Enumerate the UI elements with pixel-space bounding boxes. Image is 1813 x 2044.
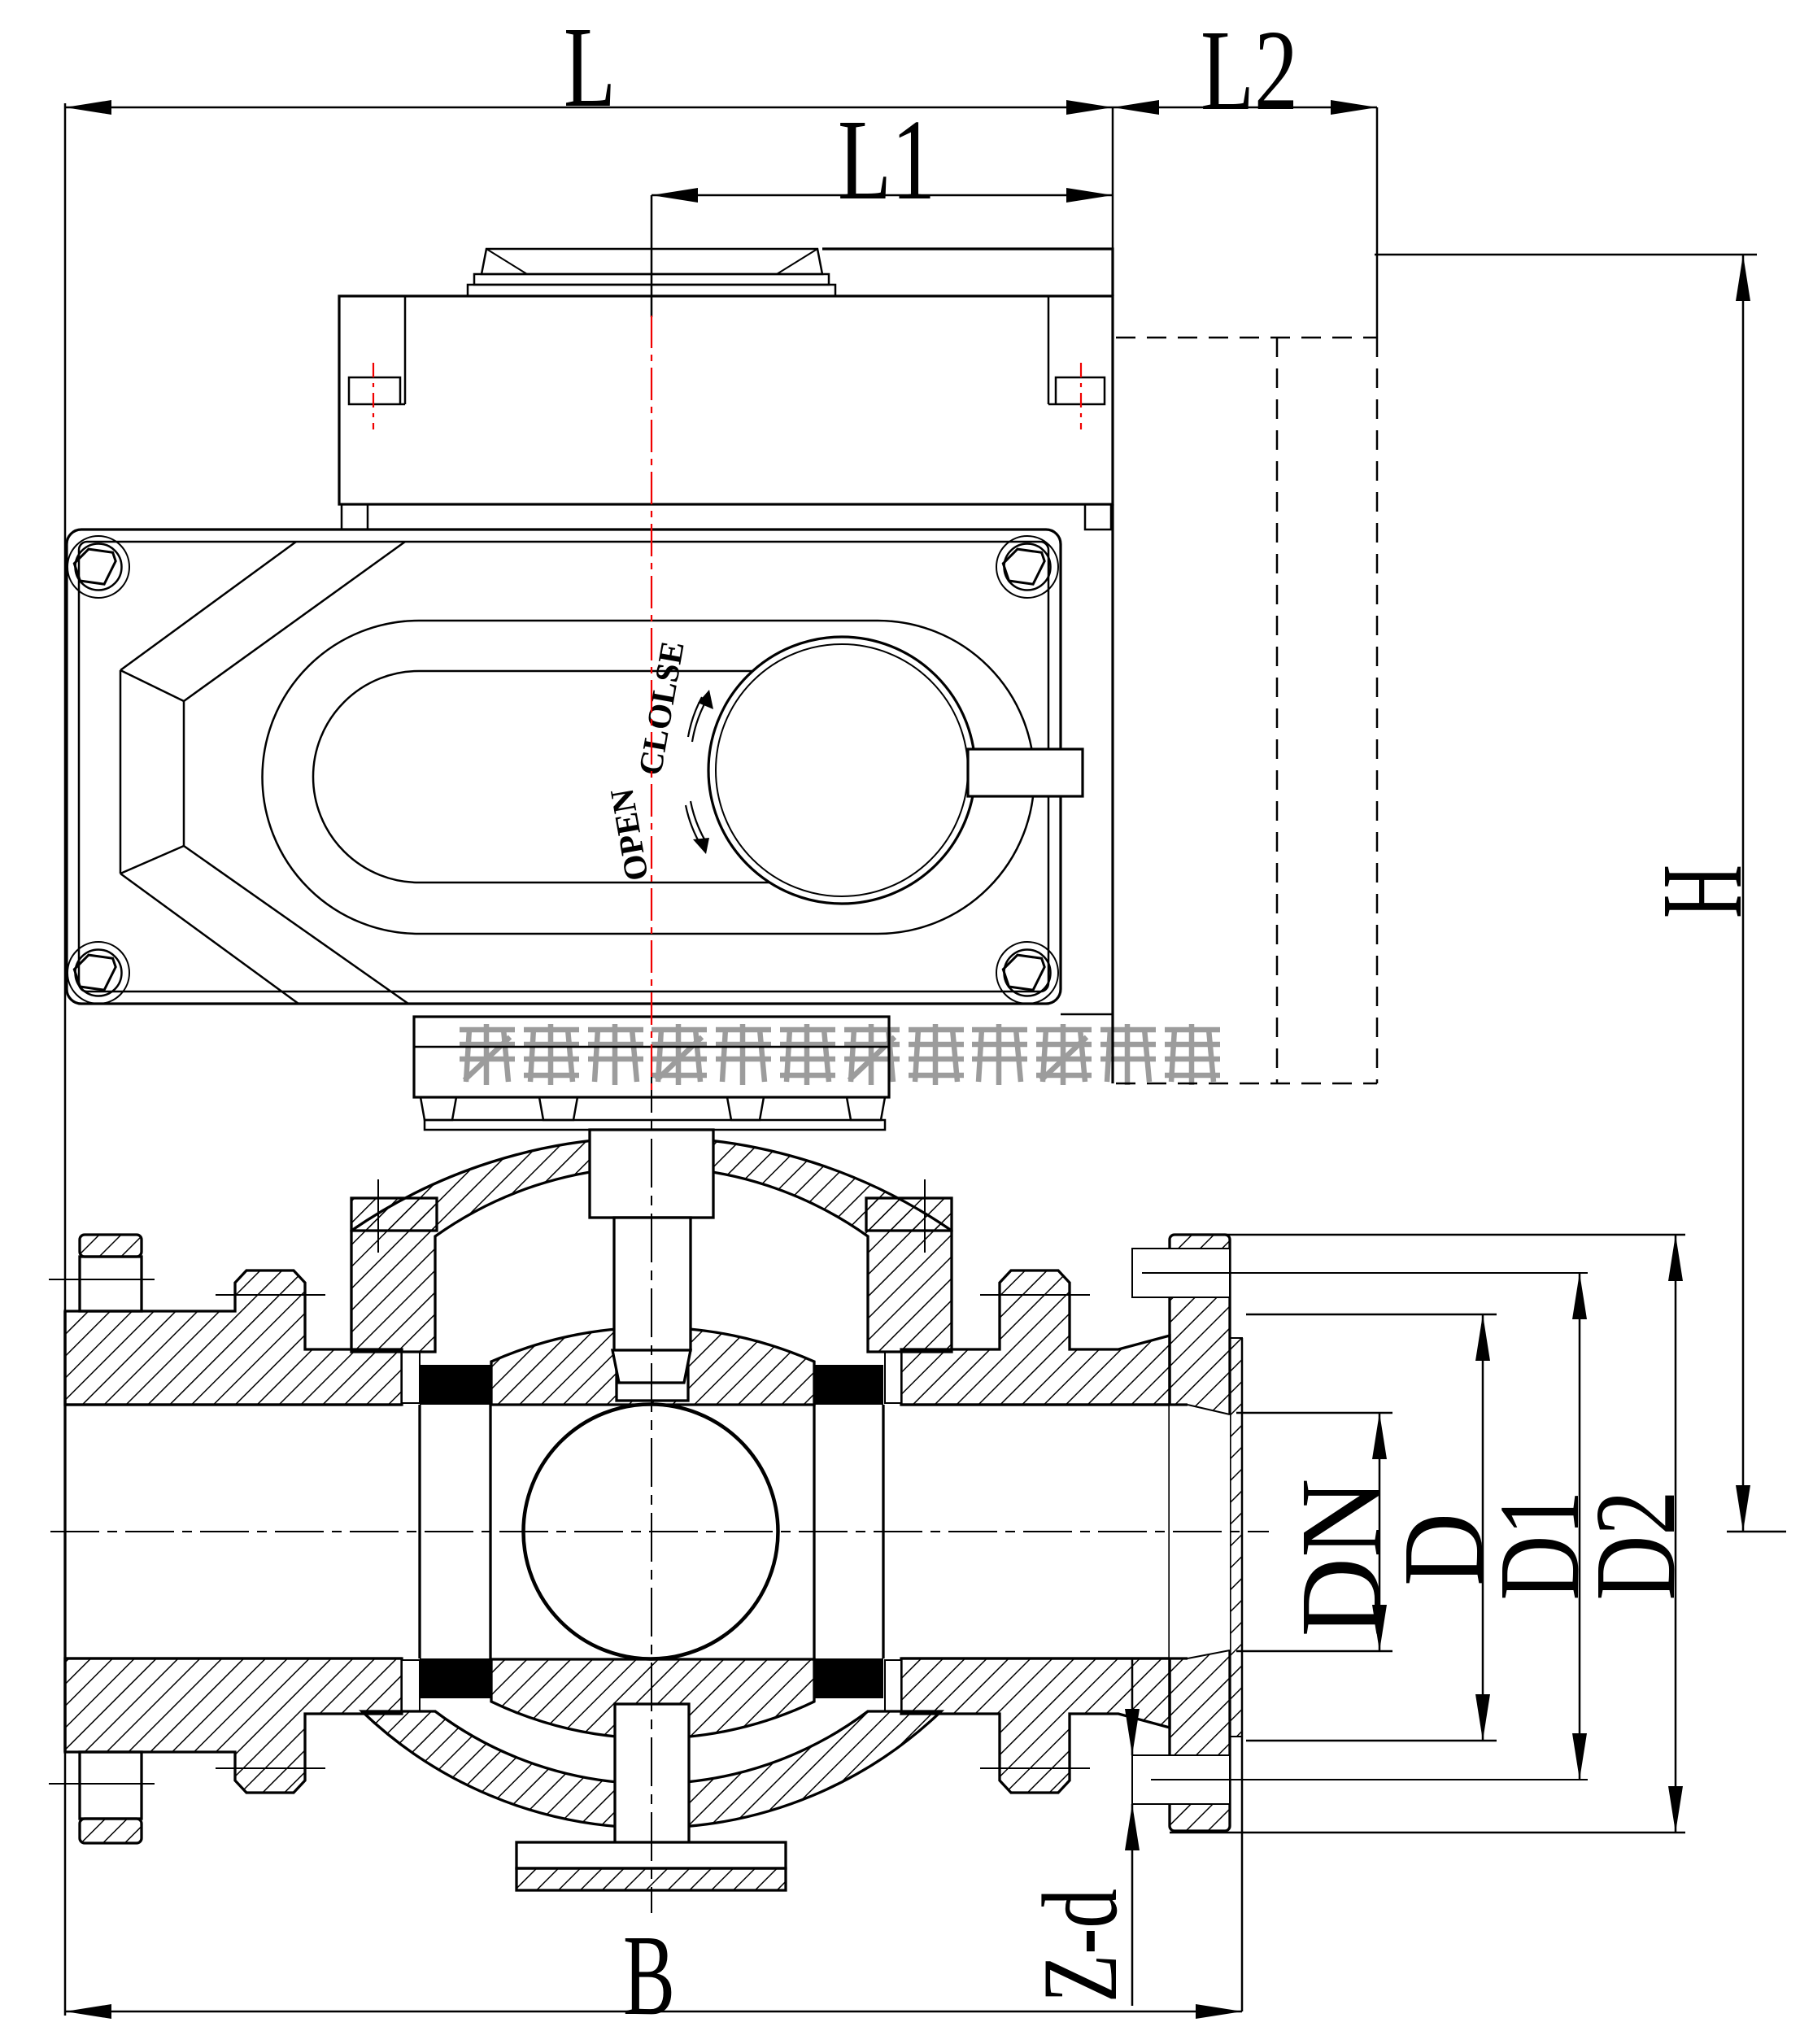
svg-text:L: L [564,2,616,131]
svg-text:L1: L1 [838,95,935,224]
svg-text:B: B [623,1911,675,2039]
svg-text:L2: L2 [1201,6,1298,134]
svg-text:D2: D2 [1571,1491,1699,1601]
svg-text:Z-d: Z-d [1020,1889,1140,2003]
svg-text:H: H [1637,865,1766,918]
